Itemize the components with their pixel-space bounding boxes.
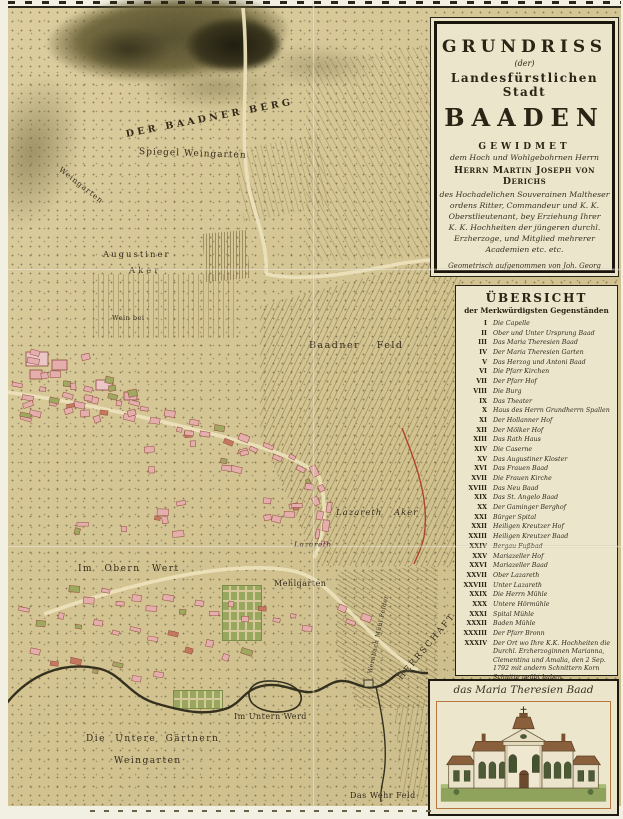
illustration-frame	[436, 701, 611, 809]
legend-row: XXIV Bergau Fußbad	[460, 543, 613, 552]
legend-numeral: IX	[460, 398, 493, 407]
legend-numeral: VII	[460, 378, 493, 387]
legend-label: Der Ort wo Ihre K.K. Hochheiten die Durc…	[493, 640, 613, 683]
legend-numeral: XIX	[460, 494, 493, 503]
legend-numeral: XII	[460, 427, 493, 436]
legend-numeral: XXXIII	[460, 630, 493, 639]
legend-label: Baden Mühle	[493, 620, 536, 629]
legend-label: Das Frauen Baad	[493, 465, 548, 474]
legend-row: XXVII Ober Lazareth	[460, 572, 613, 581]
map-region-label: Das Wehr Feld	[350, 791, 416, 800]
legend-row: III Das Maria Theresien Baad	[460, 339, 613, 348]
legend-label: Der Pfarr Hof	[493, 378, 537, 387]
legend-label: Das Theater	[493, 398, 532, 407]
legend-label: Bergau Fußbad	[493, 543, 543, 552]
sheet-margin-left	[0, 0, 8, 819]
map-region-label: Augustiner	[103, 250, 171, 260]
legend-numeral: VI	[460, 368, 493, 377]
legend-numeral: XXXIV	[460, 640, 493, 649]
legend-numeral: X	[460, 407, 493, 416]
dedication-line: Oberstlieutenant, bey Erziehung Ihrer	[437, 211, 612, 222]
legend-row: XIV Die Caserne	[460, 446, 613, 455]
legend-row: XXV Mariazeller Hof	[460, 553, 613, 562]
title-cartouche: GRUNDRISS (der) Landesfürstlichen Stadt …	[430, 17, 619, 277]
legend-numeral: XXXII	[460, 620, 493, 629]
legend-numeral: VIII	[460, 388, 493, 397]
dedication-intro: dem Hoch und Wohlgebohrnen Herrn	[437, 152, 612, 163]
map-region-label: Mehlgarten	[274, 579, 326, 588]
legend-numeral: XV	[460, 456, 493, 465]
map-title: GRUNDRISS	[437, 37, 612, 57]
legend-row: XII Der Mölker Hof	[460, 427, 613, 436]
legend-row: XV Das Augustiner Kloster	[460, 456, 613, 465]
legend-row: XXI Bürger Spital	[460, 514, 613, 523]
map-region-label: Spiegel Weingarten	[139, 147, 247, 161]
legend-row: XXIII Heiligen Kreutzer Baad	[460, 533, 613, 542]
legend-label: Der Pfarr Bronn	[493, 630, 545, 639]
map-region-label: Weingarten	[57, 165, 105, 205]
legend-label: Das Maria Theresien Baad	[493, 339, 578, 348]
legend-row: XVIII Das Neu Baad	[460, 485, 613, 494]
dedication-line: Academien etc. etc.	[437, 244, 612, 255]
legend-label: Spital Mühle	[493, 611, 534, 620]
map-region-label: Lazareth	[294, 540, 332, 549]
legend-numeral: XXII	[460, 523, 493, 532]
map-region-label: DER BAADNER BERG	[125, 97, 294, 140]
legend-label: Die Caserne	[493, 446, 532, 455]
legend-numeral: XXIII	[460, 533, 493, 542]
legend-row: XXII Heiligen Kreutzer Hof	[460, 523, 613, 532]
legend-label: Haus des Herrn Grundherrn Spallen	[493, 407, 610, 416]
legend-label: Das Neu Baad	[493, 485, 539, 494]
legend-label: Das Rath Haus	[493, 436, 541, 445]
dedication-line: Erzherzoge, und Mitglied mehrerer	[437, 233, 612, 244]
legend-row: XVII Die Frauen Kirche	[460, 475, 613, 484]
border-tick-marks-bottom	[90, 810, 440, 812]
illustration-panel: das Maria Theresien Baad	[428, 679, 619, 816]
legend-row: XX Der Gaminger Berghof	[460, 504, 613, 513]
legend-row: XXXII Baden Mühle	[460, 620, 613, 629]
legend-label: Mariazeller Hof	[493, 553, 543, 562]
legend-label: Die Frauen Kirche	[493, 475, 552, 484]
legend-row: XIII Das Rath Haus	[460, 436, 613, 445]
legend-numeral: XI	[460, 417, 493, 426]
legend-numeral: XXIX	[460, 591, 493, 600]
legend-numeral: XXX	[460, 601, 493, 610]
illustration-caption: das Maria Theresien Baad	[430, 684, 617, 696]
legend-row: I Die Capelle	[460, 320, 613, 329]
legend-row: XXVI Mariazeller Baad	[460, 562, 613, 571]
legend-label: Das Herzog und Antoni Baad	[493, 359, 586, 368]
legend-label: Die Pfarr Kirchen	[493, 368, 549, 377]
legend-label: Ober Lazareth	[493, 572, 539, 581]
map-sheet: DER BAADNER BERGSpiegel WeingartenWeinga…	[0, 0, 623, 819]
legend-row: VIII Die Burg	[460, 388, 613, 397]
legend-numeral: XXVIII	[460, 582, 493, 591]
legend-row: XXXI Spital Mühle	[460, 611, 613, 620]
legend-numeral: V	[460, 359, 493, 368]
legend-label: Mariazeller Baad	[493, 562, 548, 571]
legend-label: Der Maria Theresien Garten	[493, 349, 584, 358]
legend-row: XXX Untere Hörmühle	[460, 601, 613, 610]
map-region-label: Wernbach Mühl Felder	[367, 595, 390, 674]
legend-row: XXXIII Der Pfarr Bronn	[460, 630, 613, 639]
maria-theresien-baad-illustration	[437, 702, 610, 808]
map-title-stadt: Landesfürstlichen Stadt	[437, 71, 612, 99]
legend-numeral: XIII	[460, 436, 493, 445]
legend-numeral: XIV	[460, 446, 493, 455]
legend-label: Unter Lazareth	[493, 582, 542, 591]
border-tick-marks-top	[8, 1, 621, 4]
legend-label: Ober und Unter Ursprung Baad	[493, 330, 595, 339]
legend-row: XIX Das St. Angelo Baad	[460, 494, 613, 503]
dedication-line: K. K. Hochheiten der jüngeren durchl.	[437, 222, 612, 233]
legend-panel: ÜBERSICHT der Merkwürdigsten Gegenstände…	[455, 285, 618, 676]
legend-numeral: XXVII	[460, 572, 493, 581]
legend-numeral: XXIV	[460, 543, 493, 552]
legend-row: X Haus des Herrn Grundherrn Spallen	[460, 407, 613, 416]
legend-row: VI Die Pfarr Kirchen	[460, 368, 613, 377]
legend-row: XXIX Die Herrn Mühle	[460, 591, 613, 600]
legend-row: XI Der Hollanner Hof	[460, 417, 613, 426]
map-region-label: Aker	[129, 266, 161, 276]
legend-label: Das St. Angelo Baad	[493, 494, 558, 503]
legend-label: Der Gaminger Berghof	[493, 504, 566, 513]
map-title-der: (der)	[437, 59, 612, 68]
dedication-name: Herrn Martin Joseph von Derichs	[437, 165, 612, 187]
legend-numeral: III	[460, 339, 493, 348]
dedication-heading: GEWIDMET	[437, 142, 612, 152]
legend-numeral: IV	[460, 349, 493, 358]
legend-label: Bürger Spital	[493, 514, 536, 523]
map-region-label: Wein bei	[112, 314, 144, 322]
legend-row: VII Der Pfarr Hof	[460, 378, 613, 387]
legend-label: Der Mölker Hof	[493, 427, 543, 436]
legend-label: Die Capelle	[493, 320, 530, 329]
legend-label: Der Hollanner Hof	[493, 417, 552, 426]
legend-numeral: XVIII	[460, 485, 493, 494]
legend-label: Heiligen Kreutzer Baad	[493, 533, 568, 542]
legend-numeral: XX	[460, 504, 493, 513]
legend-title: ÜBERSICHT	[460, 291, 613, 305]
title-cartouche-inner: GRUNDRISS (der) Landesfürstlichen Stadt …	[434, 21, 615, 273]
legend-row: V Das Herzog und Antoni Baad	[460, 359, 613, 368]
legend-numeral: XVI	[460, 465, 493, 474]
legend-row: IV Der Maria Theresien Garten	[460, 349, 613, 358]
legend-row: XXXIV Der Ort wo Ihre K.K. Hochheiten di…	[460, 640, 613, 683]
legend-subtitle: der Merkwürdigsten Gegenständen	[460, 306, 613, 315]
legend-label: Das Augustiner Kloster	[493, 456, 567, 465]
map-region-label: Im Untern Werd	[234, 712, 307, 721]
legend-row: II Ober und Unter Ursprung Baad	[460, 330, 613, 339]
legend-numeral: I	[460, 320, 493, 329]
legend-numeral: XXVI	[460, 562, 493, 571]
surveyor-line: Geometrisch aufgenommen von Joh. Georg K…	[437, 262, 612, 273]
map-region-label: Im Obern Wert	[78, 564, 180, 574]
map-region-label: Weingarten	[114, 756, 182, 766]
legend-label: Die Herrn Mühle	[493, 591, 547, 600]
map-region-label: Die Untere Gärtnern	[86, 734, 219, 744]
dedication-line: des Hochadelichen Souverainen Maltheser	[437, 189, 612, 200]
dedication-line: ordens Ritter, Commandeur und K. K.	[437, 200, 612, 211]
legend-row: IX Das Theater	[460, 398, 613, 407]
legend-numeral: II	[460, 330, 493, 339]
legend-numeral: XXXI	[460, 611, 493, 620]
legend-label: Heiligen Kreutzer Hof	[493, 523, 564, 532]
legend-numeral: XXV	[460, 553, 493, 562]
legend-numeral: XXI	[460, 514, 493, 523]
legend-row: XXVIII Unter Lazareth	[460, 582, 613, 591]
legend-label: Die Burg	[493, 388, 522, 397]
map-region-label: Lazareth Aker	[336, 508, 418, 518]
legend-label: Untere Hörmühle	[493, 601, 549, 610]
legend-numeral: XVII	[460, 475, 493, 484]
map-title-baaden: BAADEN	[437, 103, 612, 132]
legend-row: XVI Das Frauen Baad	[460, 465, 613, 474]
map-region-label: Baadner Feld	[309, 340, 404, 351]
